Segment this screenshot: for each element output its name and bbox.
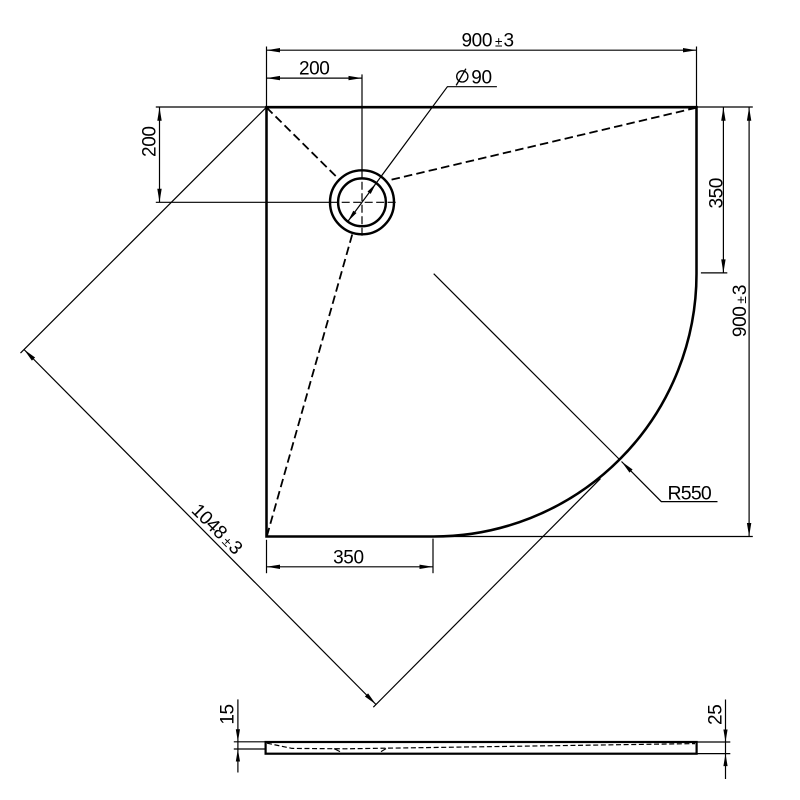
svg-text:900±3: 900±3: [462, 30, 514, 51]
svg-text:350: 350: [707, 178, 728, 209]
svg-text:90: 90: [471, 68, 491, 89]
svg-text:25: 25: [705, 705, 726, 725]
svg-text:1048±3: 1048±3: [187, 500, 246, 559]
svg-text:900±3: 900±3: [730, 285, 751, 337]
svg-text:200: 200: [299, 59, 330, 80]
svg-text:350: 350: [333, 548, 364, 569]
svg-text:200: 200: [139, 126, 160, 157]
svg-text:R550: R550: [668, 482, 712, 504]
svg-text:15: 15: [218, 704, 239, 724]
